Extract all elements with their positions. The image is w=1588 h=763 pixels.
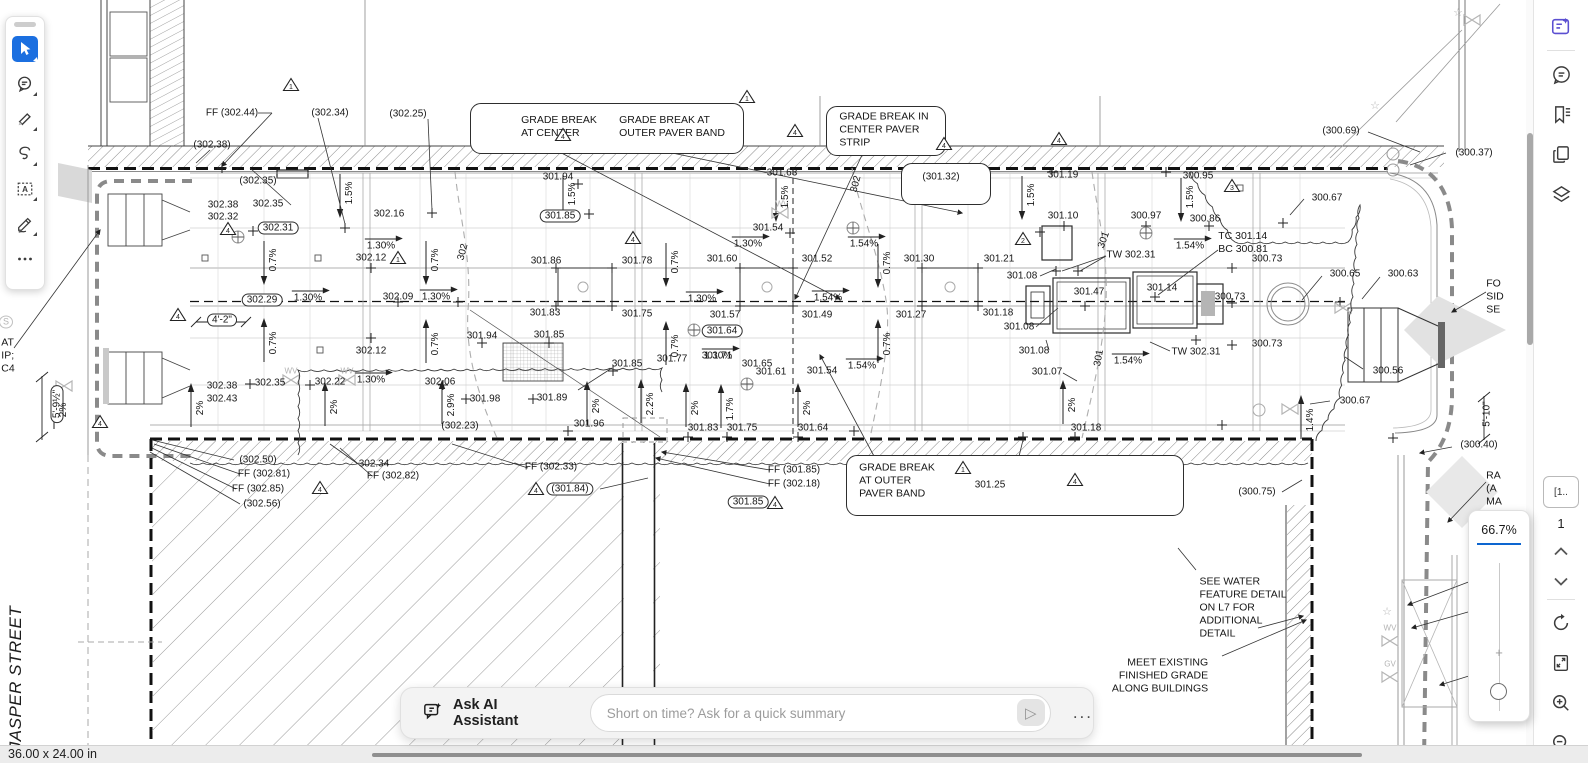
horizontal-scrollbar-thumb[interactable] <box>372 753 1362 757</box>
ai-more-options-button[interactable]: ... <box>1073 703 1093 723</box>
zoom-slider-handle[interactable] <box>1490 683 1507 700</box>
previous-page-button[interactable] <box>1544 539 1578 563</box>
ai-chat-icon <box>423 701 443 726</box>
svg-text:☆: ☆ <box>1370 100 1380 112</box>
text-select-icon: A <box>16 180 34 198</box>
plan-canvas[interactable]: ☆☆☆ FF (302.44)(302.34)(302.25)(302.38)(… <box>0 0 1588 763</box>
lasso-tool-button[interactable] <box>12 141 38 167</box>
ai-assistant-bar: Ask AI Assistant Short on time? Ask for … <box>400 687 1094 739</box>
next-page-button[interactable] <box>1544 569 1578 593</box>
page-size-label: 36.00 x 24.00 in <box>8 747 97 761</box>
street-name-label: JASPER STREET <box>6 568 26 763</box>
zoom-in-button[interactable] <box>1544 686 1578 720</box>
grading-plan-drawing: ☆☆☆ <box>0 0 1588 763</box>
chevron-up-icon <box>1554 547 1568 556</box>
zoom-popup: 66.7% + <box>1468 510 1530 722</box>
svg-text:☆: ☆ <box>1453 7 1463 19</box>
ai-input-placeholder: Short on time? Ask for a quick summary <box>607 706 846 721</box>
zoom-slider-tick: + <box>1491 645 1507 660</box>
tool-palette: A <box>5 16 45 290</box>
send-button[interactable]: ▷ <box>1017 699 1045 726</box>
select-tool-button[interactable] <box>12 36 38 62</box>
zoom-percentage: 66.7% <box>1469 523 1529 537</box>
fit-page-icon <box>1551 653 1571 673</box>
status-bar: 36.00 x 24.00 in <box>0 745 1588 763</box>
comments-icon <box>1551 64 1572 85</box>
comment-tool-button[interactable] <box>12 71 38 97</box>
chevron-down-icon <box>1554 577 1568 586</box>
zoom-in-icon <box>1551 693 1571 713</box>
comment-icon <box>16 75 34 93</box>
svg-text:A: A <box>22 185 28 194</box>
layers-panel-button[interactable] <box>1544 177 1578 211</box>
page-number: 1 <box>1534 516 1588 531</box>
ai-prompt-input[interactable]: Short on time? Ask for a quick summary ▷ <box>590 694 1051 732</box>
layers-icon <box>1551 184 1572 205</box>
more-tools-button[interactable] <box>12 246 38 272</box>
ai-assistant-button[interactable] <box>1544 10 1578 44</box>
text-select-tool-button[interactable]: A <box>12 176 38 202</box>
zoom-underline <box>1477 543 1521 545</box>
page-thumbnail-box[interactable]: [1.. <box>1543 476 1579 508</box>
fit-page-button[interactable] <box>1544 646 1578 680</box>
lasso-icon <box>16 145 34 163</box>
app-window: ☆☆☆ FF (302.44)(302.34)(302.25)(302.38)(… <box>0 0 1588 763</box>
vertical-scrollbar-thumb[interactable] <box>1527 133 1533 345</box>
rotate-icon <box>1551 613 1571 633</box>
comments-panel-button[interactable] <box>1544 57 1578 91</box>
signature-icon <box>16 215 34 233</box>
palette-drag-handle[interactable] <box>14 22 36 27</box>
ai-assistant-icon <box>1550 16 1572 38</box>
cursor-icon <box>17 41 33 57</box>
pages-panel-button[interactable] <box>1544 137 1578 171</box>
bookmark-icon <box>1551 104 1572 125</box>
highlight-tool-button[interactable] <box>12 106 38 132</box>
ellipsis-icon <box>17 256 33 262</box>
sign-tool-button[interactable] <box>12 211 38 237</box>
rotate-page-button[interactable] <box>1544 606 1578 640</box>
right-sidebar: [1.. 1 <box>1533 0 1588 763</box>
highlighter-icon <box>16 110 34 128</box>
pages-icon <box>1551 144 1572 165</box>
svg-text:☆: ☆ <box>1382 606 1392 618</box>
bookmarks-panel-button[interactable] <box>1544 97 1578 131</box>
ai-assistant-label[interactable]: Ask AI Assistant <box>453 697 564 729</box>
